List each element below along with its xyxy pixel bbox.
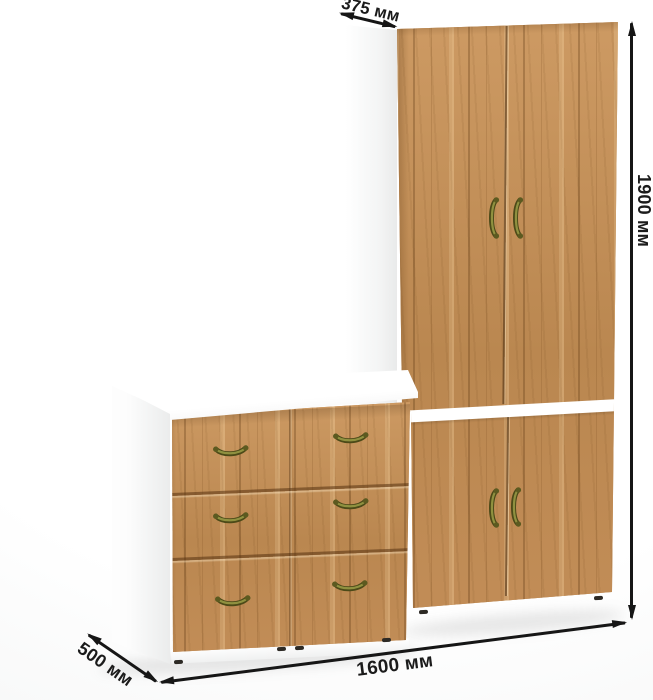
wardrobe-foot	[594, 596, 603, 601]
drawer-handle-icon	[333, 497, 370, 517]
dimension-height: 1900 мм	[624, 22, 640, 619]
door-handle-icon	[509, 487, 522, 532]
furniture-product-render: 375 мм 1900 мм 500 мм 1600 мм	[0, 0, 653, 700]
dimension-label-height: 1900 мм	[633, 174, 653, 247]
arrowhead-icon	[612, 618, 628, 628]
dresser-foot	[382, 638, 391, 642]
wardrobe-doors	[397, 20, 619, 626]
dresser-foot	[295, 646, 304, 650]
wardrobe-foot	[419, 610, 428, 615]
door-handle-icon	[511, 197, 524, 244]
drawer-handle-icon	[213, 511, 250, 531]
arrowhead-icon	[158, 676, 174, 686]
dimension-label-depth-top: 375 мм	[339, 0, 401, 27]
wardrobe	[397, 20, 619, 626]
drawer-handle-icon	[213, 444, 250, 464]
dresser-foot	[277, 647, 286, 651]
drawer-handle-icon	[215, 594, 252, 614]
door-handle-icon	[487, 488, 500, 533]
dresser-foot	[174, 660, 183, 664]
door-handle-icon	[487, 197, 500, 244]
arrowhead-icon	[628, 21, 636, 36]
wardrobe-upper-door-seam	[502, 26, 507, 404]
drawer-handle-icon	[332, 579, 369, 599]
drawer-handle-icon	[333, 431, 370, 451]
dresser-side-panel	[112, 384, 170, 666]
chest-of-drawers	[168, 396, 414, 658]
arrowhead-icon	[628, 605, 636, 620]
dimension-arrow-shaft	[631, 23, 634, 618]
drawer-column-gap	[289, 396, 292, 658]
